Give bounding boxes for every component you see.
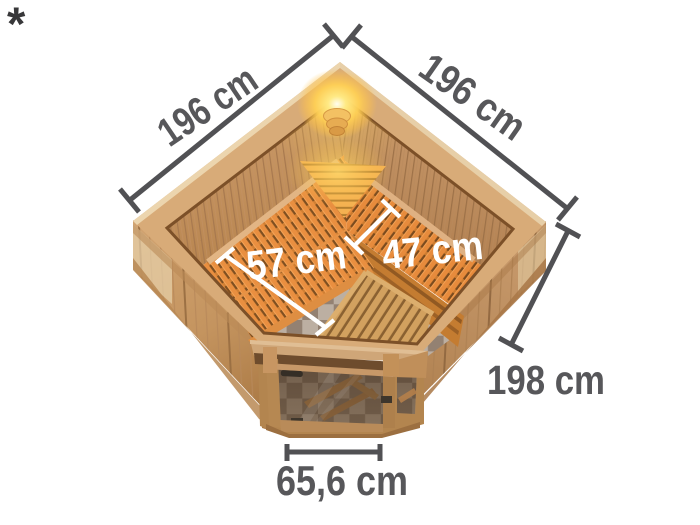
svg-text:*: *: [7, 0, 26, 50]
svg-text:198 cm: 198 cm: [487, 357, 605, 403]
svg-text:65,6 cm: 65,6 cm: [276, 457, 408, 504]
